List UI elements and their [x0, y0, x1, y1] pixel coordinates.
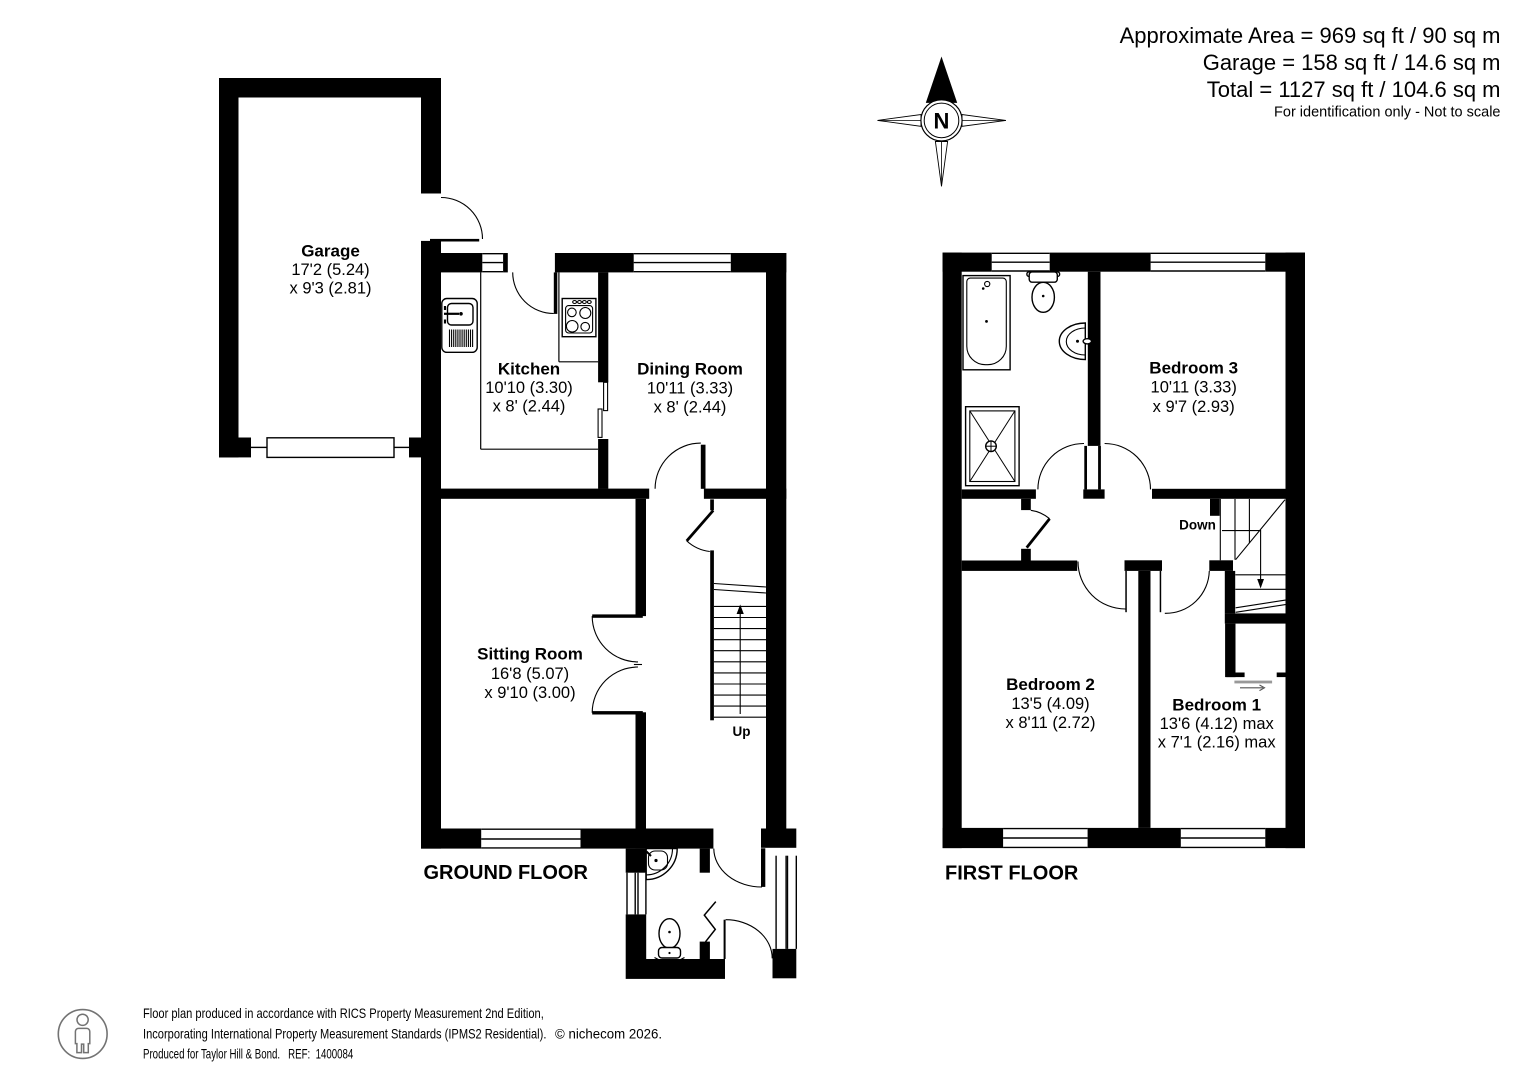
svg-text:Produced for Taylor Hill & Bon: Produced for Taylor Hill & Bond. REF: 14…	[143, 1046, 353, 1062]
svg-text:For identification only - Not: For identification only - Not to scale	[1274, 105, 1500, 121]
svg-text:x 9'10 (3.00): x 9'10 (3.00)	[484, 684, 575, 702]
svg-text:N: N	[934, 108, 950, 133]
svg-text:Floor plan produced in accorda: Floor plan produced in accordance with R…	[143, 1005, 544, 1021]
svg-text:Incorporating International Pr: Incorporating International Property Mea…	[143, 1025, 546, 1041]
svg-text:x 9'3 (2.81): x 9'3 (2.81)	[289, 280, 371, 298]
svg-text:x 8' (2.44): x 8' (2.44)	[493, 398, 566, 416]
svg-text:x 7'1 (2.16) max: x 7'1 (2.16) max	[1158, 733, 1277, 751]
svg-text:Garage: Garage	[301, 242, 360, 261]
svg-text:x 8'11 (2.72): x 8'11 (2.72)	[1006, 714, 1096, 732]
svg-text:Down: Down	[1179, 518, 1216, 533]
svg-text:Approximate Area = 969 sq ft /: Approximate Area = 969 sq ft / 90 sq m	[1120, 23, 1501, 48]
svg-text:16'8 (5.07): 16'8 (5.07)	[491, 665, 569, 683]
svg-text:13'5 (4.09): 13'5 (4.09)	[1011, 695, 1089, 713]
svg-text:Up: Up	[733, 724, 751, 739]
svg-text:x 8' (2.44): x 8' (2.44)	[654, 399, 727, 417]
svg-text:Dining Room: Dining Room	[637, 360, 743, 379]
svg-text:Bedroom 1: Bedroom 1	[1172, 696, 1261, 715]
svg-text:10'10 (3.30): 10'10 (3.30)	[485, 379, 573, 397]
svg-text:10'11 (3.33): 10'11 (3.33)	[1151, 379, 1237, 397]
svg-text:Sitting Room: Sitting Room	[477, 645, 583, 664]
svg-text:Bedroom 2: Bedroom 2	[1006, 675, 1095, 694]
svg-text:10'11 (3.33): 10'11 (3.33)	[647, 379, 733, 397]
svg-text:Total = 1127 sq ft / 104.6 sq: Total = 1127 sq ft / 104.6 sq m	[1207, 77, 1501, 102]
svg-text:© nichecom 2026.: © nichecom 2026.	[555, 1025, 662, 1041]
svg-text:13'6 (4.12) max: 13'6 (4.12) max	[1160, 715, 1275, 733]
svg-text:Kitchen: Kitchen	[498, 359, 560, 378]
svg-text:FIRST FLOOR: FIRST FLOOR	[945, 863, 1079, 885]
svg-text:Bedroom 3: Bedroom 3	[1149, 359, 1238, 378]
svg-text:x 9'7 (2.93): x 9'7 (2.93)	[1153, 398, 1235, 416]
svg-text:GROUND FLOOR: GROUND FLOOR	[424, 862, 589, 884]
svg-text:Garage = 158 sq ft / 14.6 sq m: Garage = 158 sq ft / 14.6 sq m	[1203, 50, 1501, 75]
svg-text:17'2 (5.24): 17'2 (5.24)	[291, 261, 369, 279]
